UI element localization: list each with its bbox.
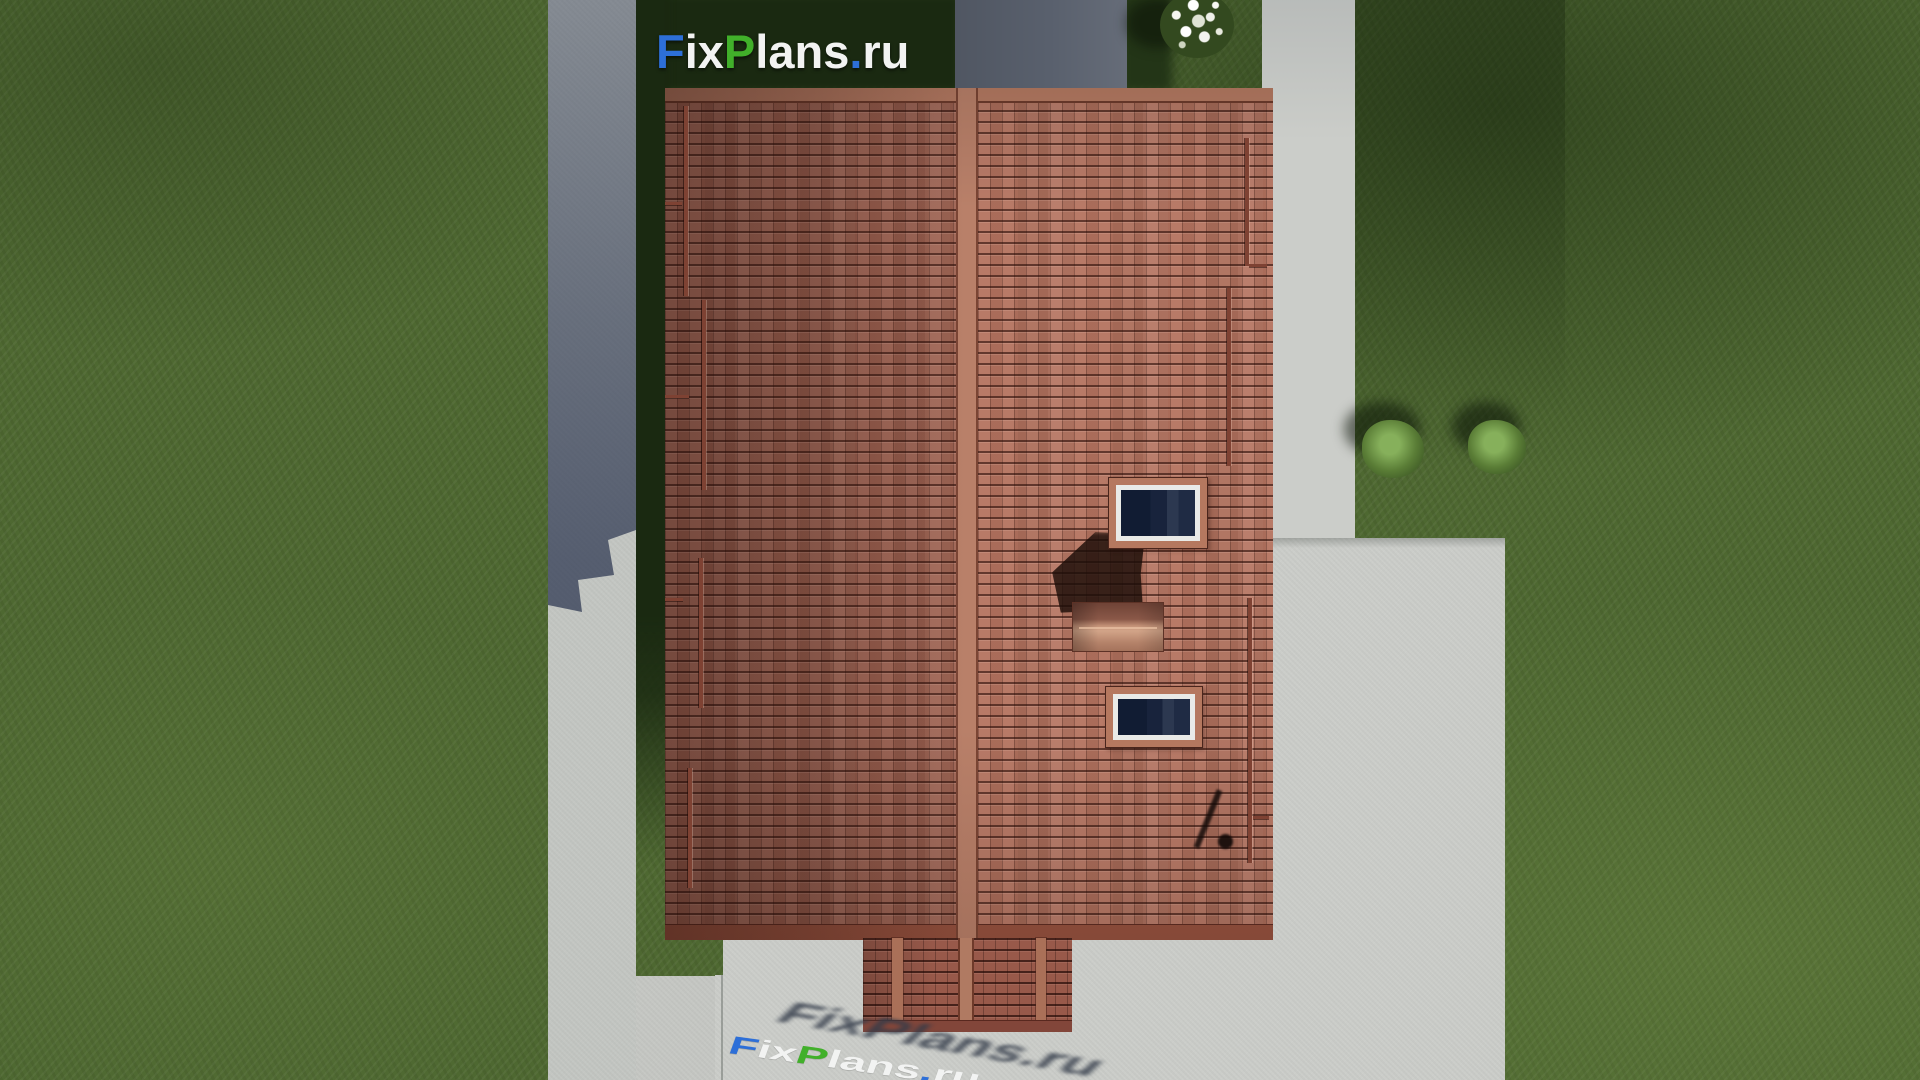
canopy-ridge [958,938,974,1020]
roof-window-frame [1116,485,1200,541]
roof-slope-left [665,88,956,940]
snow-guard-rail [1245,138,1249,266]
logo-segment: F [656,25,685,78]
walkway-widening [636,976,728,1080]
walkway-left [548,0,636,1080]
logo-segment: lans [755,25,849,78]
snow-guard-rail [699,558,703,708]
path-top-shadowed [955,0,1127,92]
logo-segment: ru [862,25,909,78]
snow-guard-rail [1248,598,1252,863]
roof-window-2 [1105,686,1203,748]
main-roof [665,88,1273,940]
bush [1468,420,1526,474]
snow-guard-bracket [665,598,683,601]
house-shadow-on-walkway [548,0,636,660]
roof-window-frame [1113,694,1195,740]
canopy-hip-strip [1036,938,1046,1020]
vent-pipe-cap [1218,834,1233,849]
snow-guard-rail [1227,288,1231,466]
logo-segment: P [724,25,755,78]
snow-guard-bracket [1253,816,1269,819]
snow-guard-rail [702,300,706,490]
watermark-logo: FixPlans.ru [656,24,909,79]
grass-shading-top-right [1355,0,1565,420]
logo-segment: . [849,25,862,78]
house-shadow-strip-left [630,0,670,880]
roof-ridge [956,88,978,940]
snow-guard-bracket [665,202,682,205]
roof-window-1 [1108,477,1208,549]
roof-window-glass [1121,490,1195,536]
roof-window-glass [1118,699,1190,735]
logo-segment: ix [685,25,724,78]
patio-top-edge-shading [1272,538,1505,548]
snow-guard-rail [688,768,692,888]
snow-guard-rail [684,106,688,296]
snow-guard-bracket [1249,264,1267,267]
canopy-hip-strip [892,938,903,1020]
site-plan-render: FixPlans.ru FixPlans.ru FixPlans.ru [0,0,1920,1080]
chimney [1072,602,1164,652]
path-right [1262,0,1355,546]
chimney-cap-ridge [1079,627,1157,629]
bush [1362,420,1424,478]
snow-guard-bracket [665,395,689,398]
